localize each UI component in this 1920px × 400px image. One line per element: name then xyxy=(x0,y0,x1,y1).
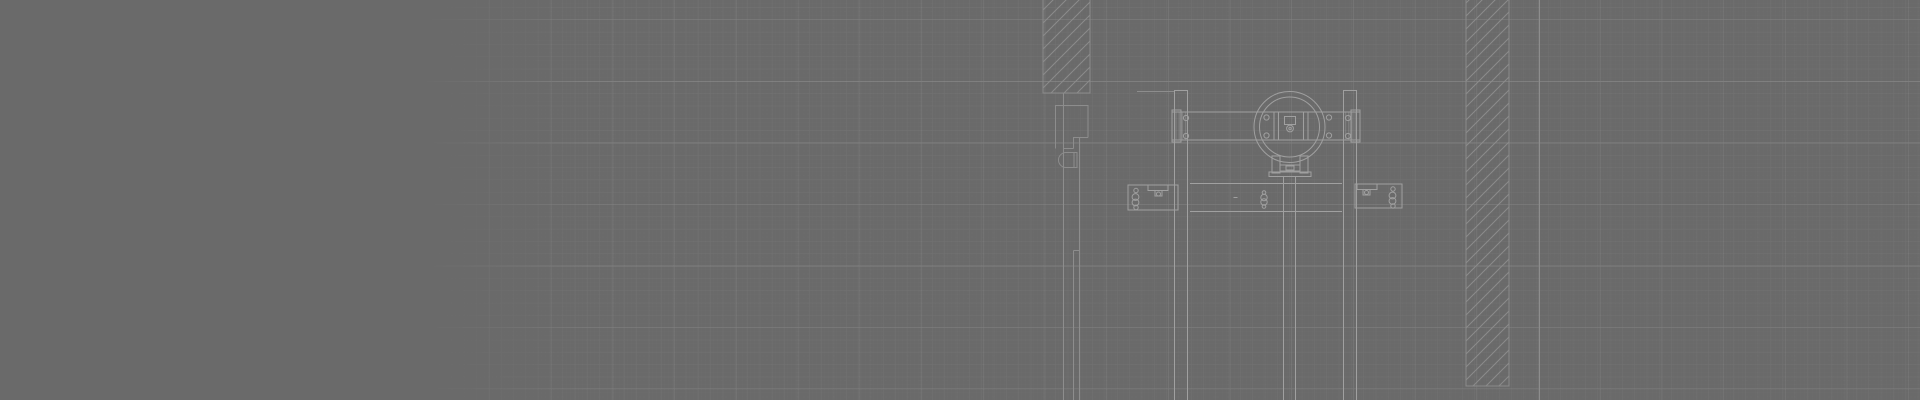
wall-section-upper xyxy=(1043,0,1090,93)
grid-major xyxy=(0,0,1920,400)
cad-canvas[interactable] xyxy=(0,0,1920,400)
grid-layer xyxy=(0,0,1920,400)
cad-viewport[interactable] xyxy=(0,0,1920,400)
beam-post-section-left xyxy=(1175,113,1187,140)
wall-column-right xyxy=(1466,0,1509,386)
